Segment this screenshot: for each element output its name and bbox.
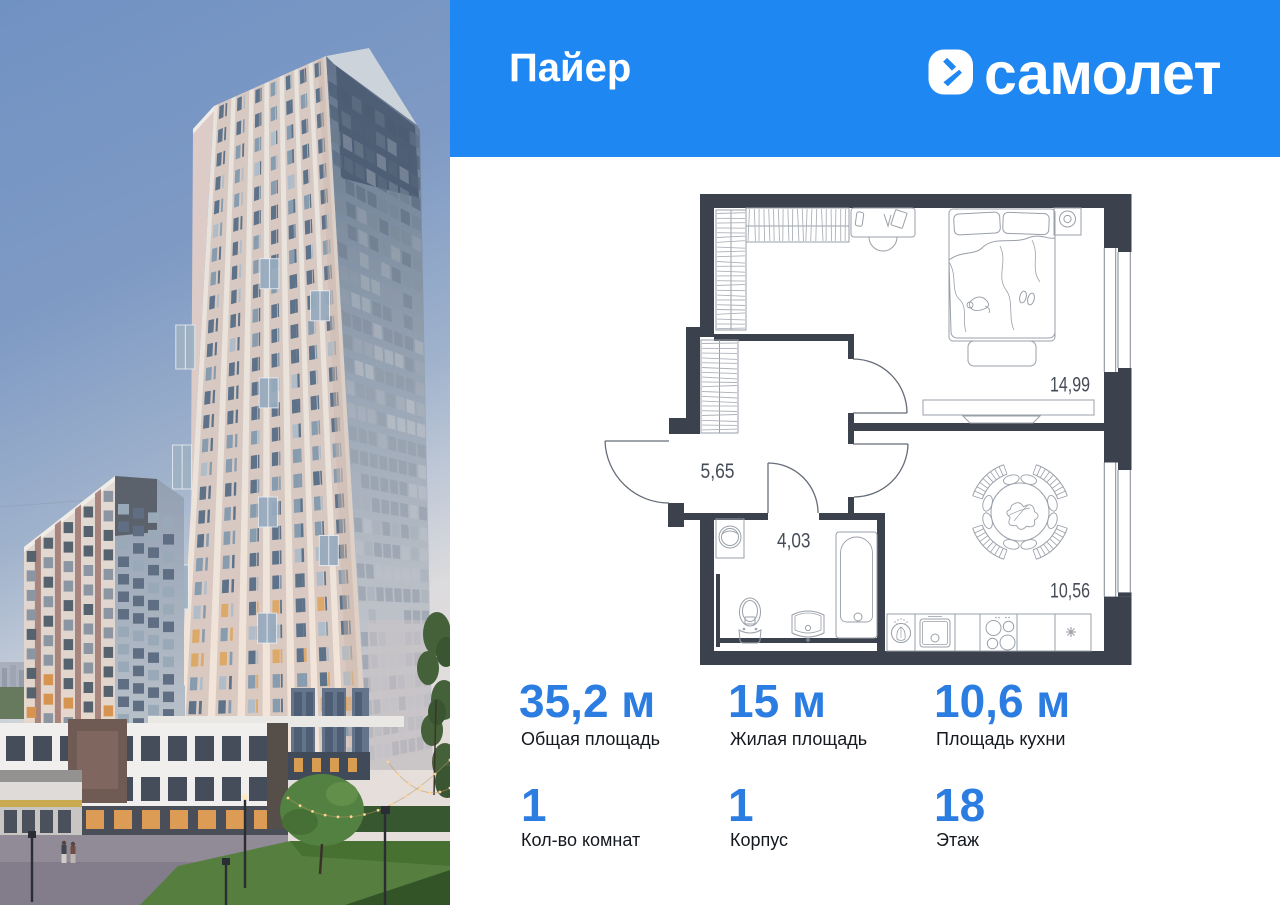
- svg-text:10,56: 10,56: [1050, 579, 1090, 603]
- svg-text:14,99: 14,99: [1050, 373, 1090, 397]
- svg-text:4,03: 4,03: [777, 529, 811, 553]
- svg-text:5,65: 5,65: [701, 459, 735, 483]
